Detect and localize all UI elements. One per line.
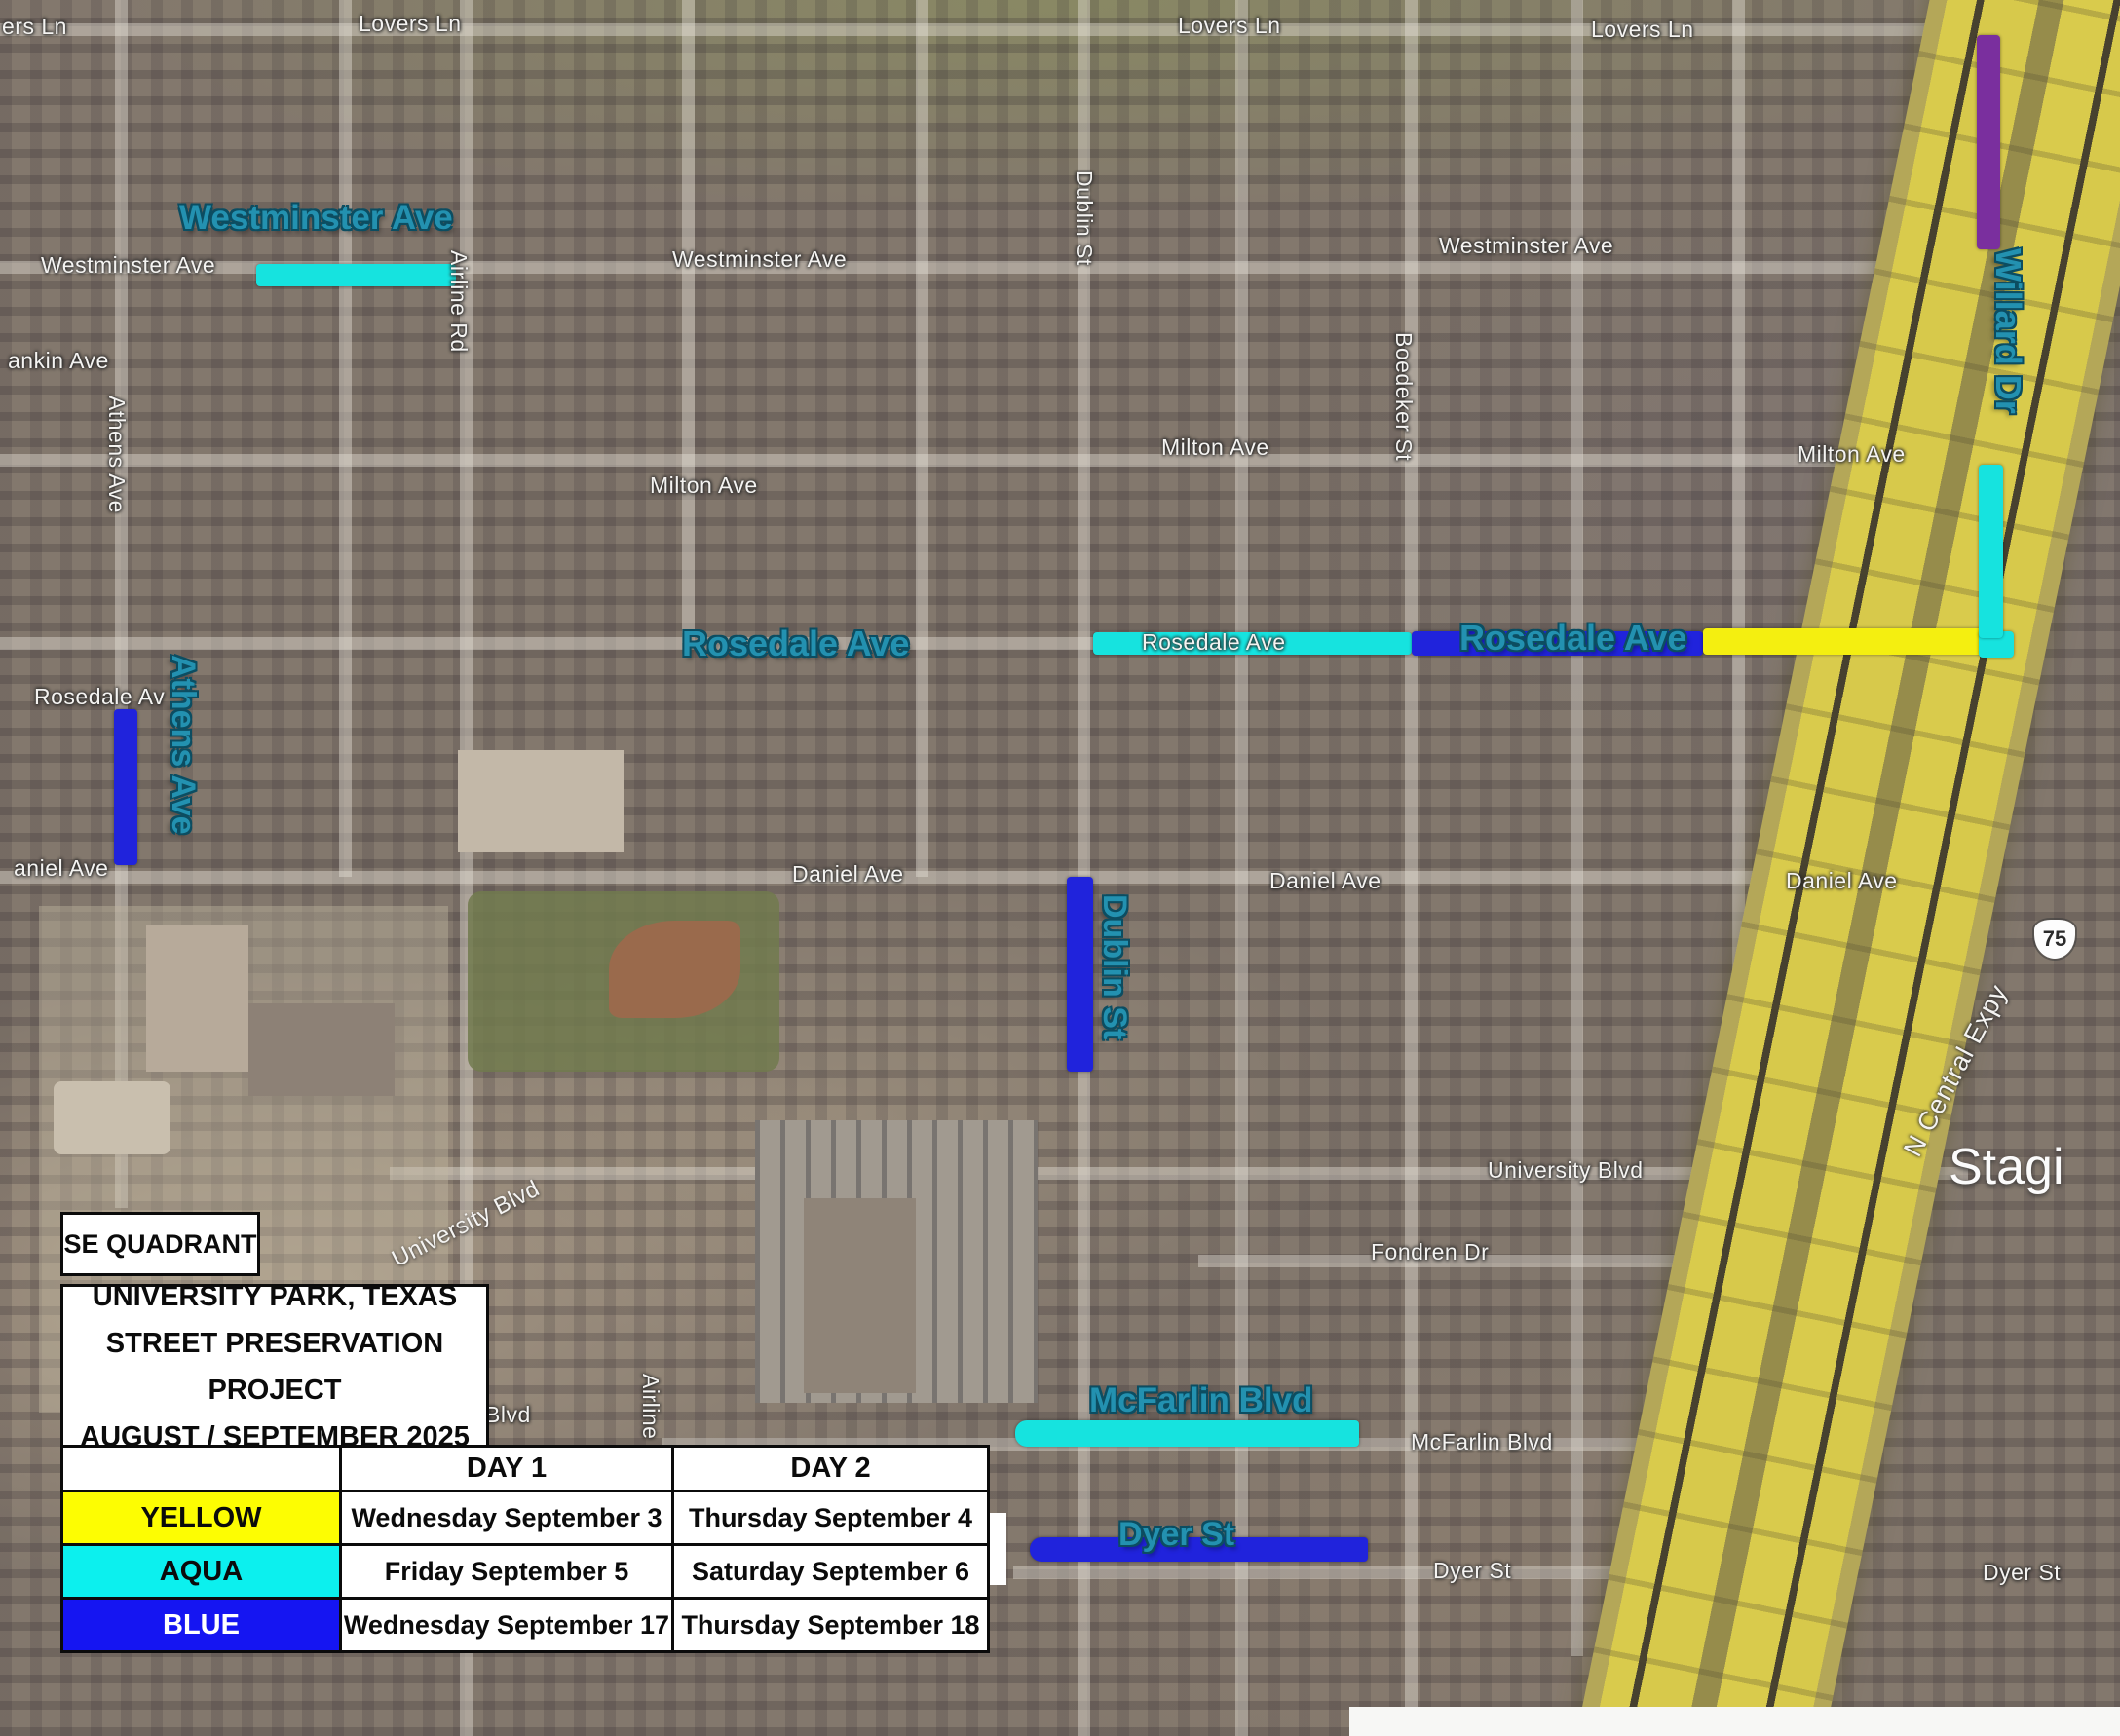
segment-willard-purple [1977, 35, 2000, 249]
street-label-athens-ave: Athens Ave [103, 396, 130, 513]
street-label-westminster-3: Westminster Ave [1439, 233, 1613, 259]
street-label-dublin-st-top: Dublin St [1071, 170, 1097, 266]
legend-aqua-day2: Saturday September 6 [673, 1545, 989, 1599]
street-label-university-east: University Blvd [1488, 1157, 1644, 1184]
campus-building-4 [804, 1198, 916, 1393]
street-label-blvd: Blvd [485, 1402, 531, 1428]
street-label-rankin-ave: ankin Ave [8, 348, 109, 374]
segment-mcfarlin-aqua [1015, 1420, 1359, 1447]
legend-day2-header: DAY 2 [673, 1447, 989, 1491]
street-label-westminster-2: Westminster Ave [672, 246, 847, 273]
legend-yellow-day1: Wednesday September 3 [341, 1491, 673, 1545]
street-label-milton-2: Milton Ave [1161, 434, 1269, 461]
legend-table: DAY 1 DAY 2 YELLOW Wednesday September 3… [60, 1445, 990, 1653]
street-label-rosedale-west: Rosedale Av [34, 684, 165, 710]
legend-blue-swatch: BLUE [62, 1599, 341, 1652]
street-label-daniel-1: aniel Ave [14, 855, 108, 882]
street-label-westminster-1: Westminster Ave [41, 252, 215, 279]
campus-building-1 [458, 750, 624, 852]
project-label-mcfarlin: McFarlin Blvd [1089, 1381, 1312, 1420]
street-label-daniel-4: Daniel Ave [1786, 868, 1898, 894]
segment-athens-blue [114, 709, 137, 865]
campus-building-2 [146, 925, 248, 1072]
quadrant-label: SE QUADRANT [63, 1229, 256, 1260]
project-label-westminster: Westminster Ave [179, 199, 453, 238]
legend-row-blue: BLUE Wednesday September 17 Thursday Sep… [62, 1599, 989, 1652]
us-75-number: 75 [2043, 926, 2066, 952]
street-label-airline-rd: Airline Rd [445, 250, 472, 353]
legend-row-yellow: YELLOW Wednesday September 3 Thursday Se… [62, 1491, 989, 1545]
legend-day1-header: DAY 1 [341, 1447, 673, 1491]
segment-willard-aqua [1979, 465, 2003, 638]
project-label-dublin: Dublin St [1095, 894, 1133, 1039]
road-vertical-4 [1235, 0, 1248, 1736]
street-label-rosedale-on-aqua: Rosedale Ave [1142, 629, 1286, 656]
street-label-fondren-dr: Fondren Dr [1371, 1239, 1489, 1265]
campus-building-3 [248, 1003, 395, 1096]
map-edge-margin [1349, 1707, 2120, 1736]
title-line-1: UNIVERSITY PARK, TEXAS [93, 1273, 457, 1320]
street-label-dyer-1: Dyer St [1433, 1558, 1511, 1584]
road-boedeker [1405, 0, 1418, 1736]
campus-building-5 [54, 1081, 170, 1154]
legend-yellow-day2: Thursday September 4 [673, 1491, 989, 1545]
legend-blue-day1: Wednesday September 17 [341, 1599, 673, 1652]
segment-dublin-blue [1067, 877, 1093, 1072]
street-label-milton-3: Milton Ave [1798, 441, 1906, 468]
satellite-map: ers Ln Lovers Ln Lovers Ln Lovers Ln Wes… [0, 0, 2120, 1736]
road-milton [0, 454, 2026, 467]
road-vertical-2 [682, 0, 695, 643]
street-label-lovers-ln-3: Lovers Ln [1591, 17, 1694, 43]
project-label-athens: Athens Ave [164, 655, 202, 835]
street-label-milton-1: Milton Ave [650, 472, 758, 499]
title-box: UNIVERSITY PARK, TEXAS STREET PRESERVATI… [60, 1284, 489, 1450]
road-daniel [0, 871, 1987, 884]
legend-yellow-swatch: YELLOW [62, 1491, 341, 1545]
title-line-2: STREET PRESERVATION PROJECT [63, 1320, 486, 1414]
segment-westminster-aqua [256, 264, 456, 286]
street-label-lovers-ln-2: Lovers Ln [1178, 13, 1281, 39]
street-label-lovers-ln-1: Lovers Ln [359, 11, 462, 37]
road-vertical-3 [916, 0, 928, 877]
legend-aqua-day1: Friday September 5 [341, 1545, 673, 1599]
street-label-boedeker-st: Boedeker St [1390, 332, 1417, 461]
street-label-airline-bottom: Airline [637, 1374, 663, 1439]
legend-header-row: DAY 1 DAY 2 [62, 1447, 989, 1491]
staging-label-cut: Stagi [1949, 1138, 2064, 1196]
quadrant-box: SE QUADRANT [60, 1212, 260, 1276]
project-label-dyer: Dyer St [1118, 1516, 1234, 1554]
project-label-rosedale-east: Rosedale Ave [1459, 618, 1686, 659]
street-label-daniel-2: Daniel Ave [792, 861, 904, 887]
street-label-lovers-ln-cut: ers Ln [2, 14, 67, 40]
street-label-mcfarlin-east: McFarlin Blvd [1411, 1429, 1553, 1455]
legend-blue-day2: Thursday September 18 [673, 1599, 989, 1652]
street-label-dyer-2: Dyer St [1983, 1560, 2061, 1586]
project-label-rosedale-west: Rosedale Ave [682, 623, 909, 664]
road-lovers-ln [0, 23, 2065, 36]
road-vertical-1 [339, 0, 352, 877]
legend-corner-cell [62, 1447, 341, 1491]
ballfield [609, 921, 740, 1018]
street-label-daniel-3: Daniel Ave [1269, 868, 1382, 894]
legend-aqua-swatch: AQUA [62, 1545, 341, 1599]
legend-row-aqua: AQUA Friday September 5 Saturday Septemb… [62, 1545, 989, 1599]
project-label-willard: Willard Dr [1987, 248, 2028, 414]
segment-rosedale-yellow [1703, 628, 1983, 655]
